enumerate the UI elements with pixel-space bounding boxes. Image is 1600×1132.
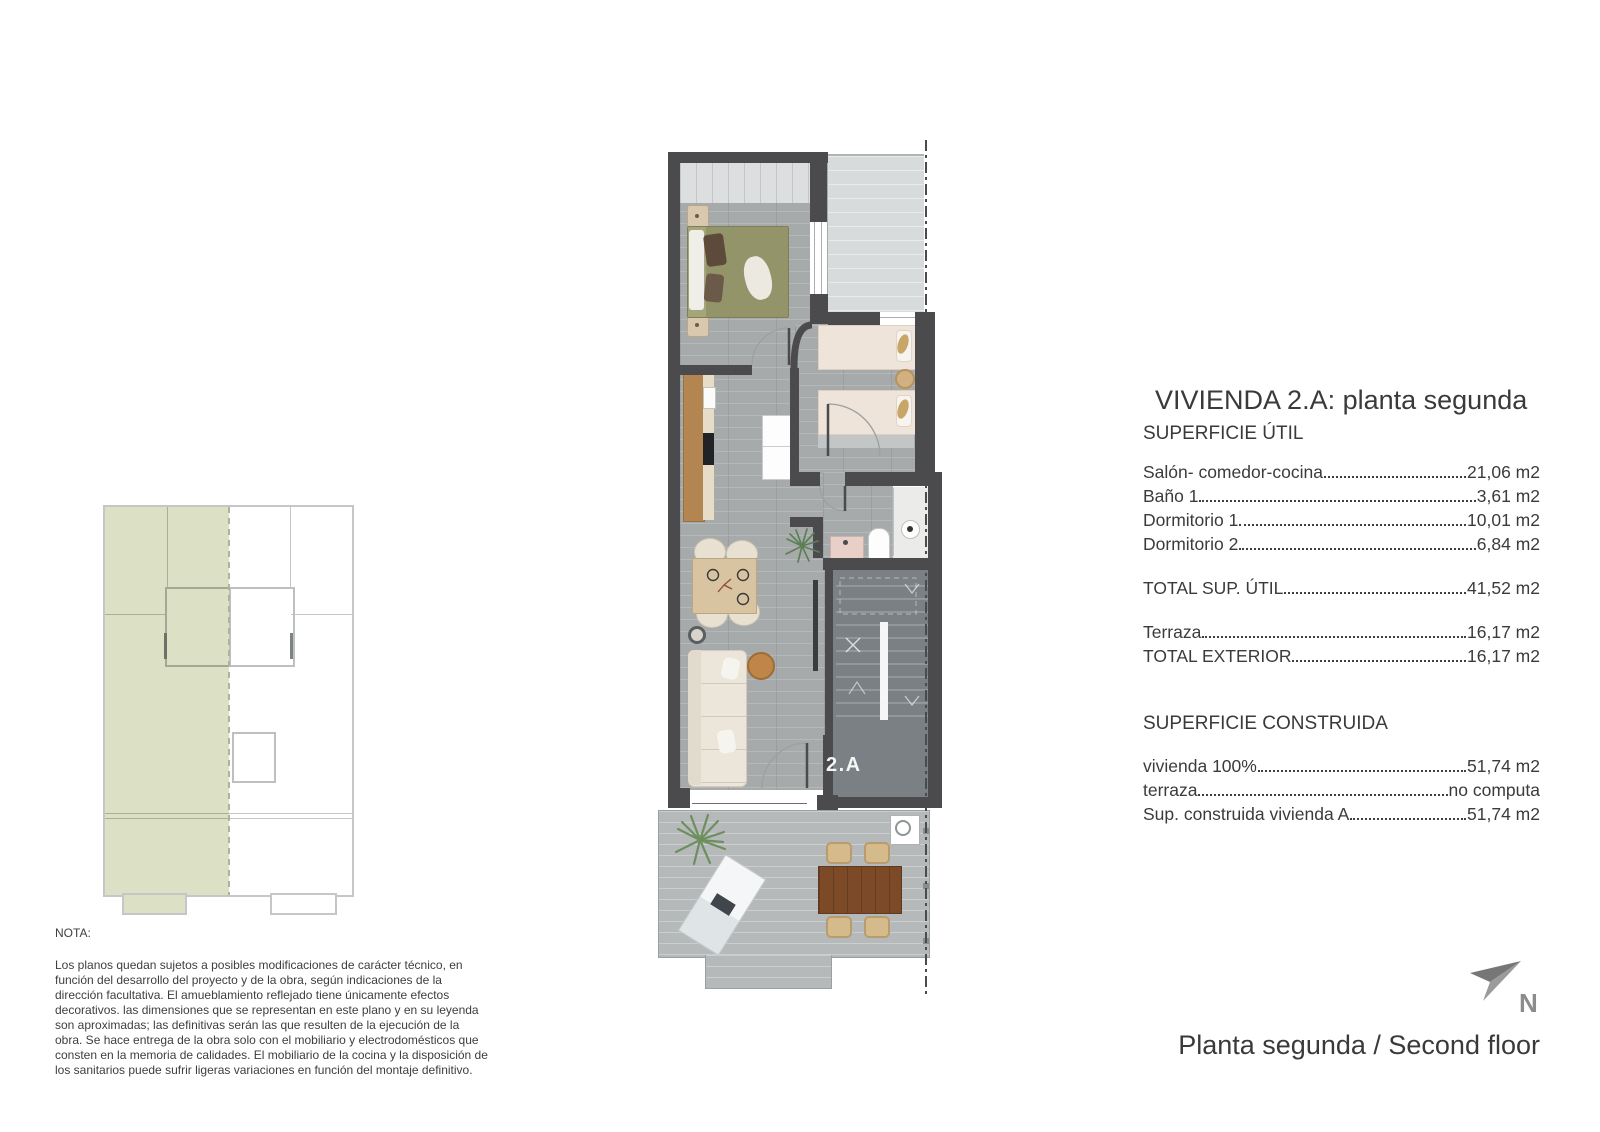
dotted-leader [1199,500,1475,502]
superficie-util-list: Salón- comedor-cocina 21,06 m2 Baño 1 3,… [1143,460,1540,556]
area-value: 51,74 m2 [1467,754,1540,778]
door-arc [828,404,880,456]
stair-arrow [905,696,919,705]
area-label: Baño 1 [1143,484,1198,508]
north-arrow-icon [1468,960,1522,1002]
area-row: vivienda 100% 51,74 m2 [1143,754,1540,778]
area-row: Baño 1 3,61 m2 [1143,484,1540,508]
dotted-leader [1239,524,1466,526]
keyplan-bottom-tab [270,893,337,915]
plate [708,570,719,581]
area-row: TOTAL EXTERIOR 16,17 m2 [1143,644,1540,668]
keyplan-door-tick [290,633,293,659]
construida-list: vivienda 100% 51,74 m2 terraza no comput… [1143,754,1540,826]
area-value: no computa [1449,778,1540,802]
dotted-leader [1284,592,1466,594]
area-label: Dormitorio 1 [1143,508,1238,532]
nota-heading: NOTA: [55,926,91,940]
stair-dashed-outline [840,578,916,614]
plate [738,594,749,605]
dotted-leader [1239,548,1475,550]
stair-treads [836,586,928,716]
exterior-list: Terraza 16,17 m2 TOTAL EXTERIOR 16,17 m2 [1143,620,1540,668]
stair-arrow [905,584,919,593]
area-row: Salón- comedor-cocina 21,06 m2 [1143,460,1540,484]
door-arc [752,328,789,365]
key-plan [103,505,354,897]
area-value: 10,01 m2 [1467,508,1540,532]
unit-label: 2.A [826,754,862,777]
area-value: 51,74 m2 [1467,802,1540,826]
dotted-leader [1292,660,1466,662]
area-value: 16,17 m2 [1467,644,1540,668]
area-label: vivienda 100% [1143,754,1257,778]
stair-triangle [849,682,865,694]
plant-icon [786,529,819,562]
keyplan-bottom-tab [122,893,187,915]
dotted-leader [1202,636,1466,638]
area-value: 16,17 m2 [1467,620,1540,644]
area-value: 6,84 m2 [1477,532,1540,556]
floor-plan: 2.A [650,138,942,1000]
mirror-line [925,140,927,996]
knob [695,214,699,218]
dotted-leader [1198,794,1447,796]
area-label: Terraza [1143,620,1201,644]
area-label: TOTAL SUP. ÚTIL [1143,576,1283,600]
plan-linework [650,138,942,1000]
stair-cross-mark [846,638,860,652]
keyplan-mirror-line [228,507,230,895]
area-row: Terraza 16,17 m2 [1143,620,1540,644]
keyplan-partition [291,614,352,615]
area-row: Sup. construida vivienda A 51,74 m2 [1143,802,1540,826]
area-label: terraza [1143,778,1197,802]
keyplan-unit-highlight [105,507,229,895]
area-row: Dormitorio 2 6,84 m2 [1143,532,1540,556]
table-sprig [718,579,732,592]
dotted-leader [1324,476,1466,478]
area-label: Salón- comedor-cocina [1143,460,1323,484]
north-label: N [1519,988,1538,1019]
keyplan-bath-core [232,732,276,783]
curved-wall [794,325,812,368]
area-label: Sup. construida vivienda A [1143,802,1349,826]
area-row: TOTAL SUP. ÚTIL 41,52 m2 [1143,576,1540,600]
knob [695,323,699,327]
area-label: Dormitorio 2 [1143,532,1238,556]
superficie-util-heading: SUPERFICIE ÚTIL [1143,423,1303,445]
dotted-leader [1258,770,1466,772]
total-util-row: TOTAL SUP. ÚTIL 41,52 m2 [1143,576,1540,600]
area-label: TOTAL EXTERIOR [1143,644,1291,668]
door-arc [762,743,807,788]
area-value: 21,06 m2 [1467,460,1540,484]
plan-sheet: 2.A [0,0,1600,1132]
footer-title: Planta segunda / Second floor [1135,1030,1540,1061]
area-value: 3,61 m2 [1477,484,1540,508]
superficie-construida-heading: SUPERFICIE CONSTRUIDA [1143,713,1388,735]
keyplan-partition [290,507,291,589]
area-row: Dormitorio 1 10,01 m2 [1143,508,1540,532]
door-arc [820,486,845,511]
dotted-leader [1350,818,1466,820]
page-title: VIVIENDA 2.A: planta segunda [1155,385,1527,416]
plant-icon [676,815,725,864]
nota-body: Los planos quedan sujetos a posibles mod… [55,958,489,1078]
area-row: terraza no computa [1143,778,1540,802]
area-value: 41,52 m2 [1467,576,1540,600]
plate [738,570,749,581]
keyplan-core-right [229,587,295,667]
